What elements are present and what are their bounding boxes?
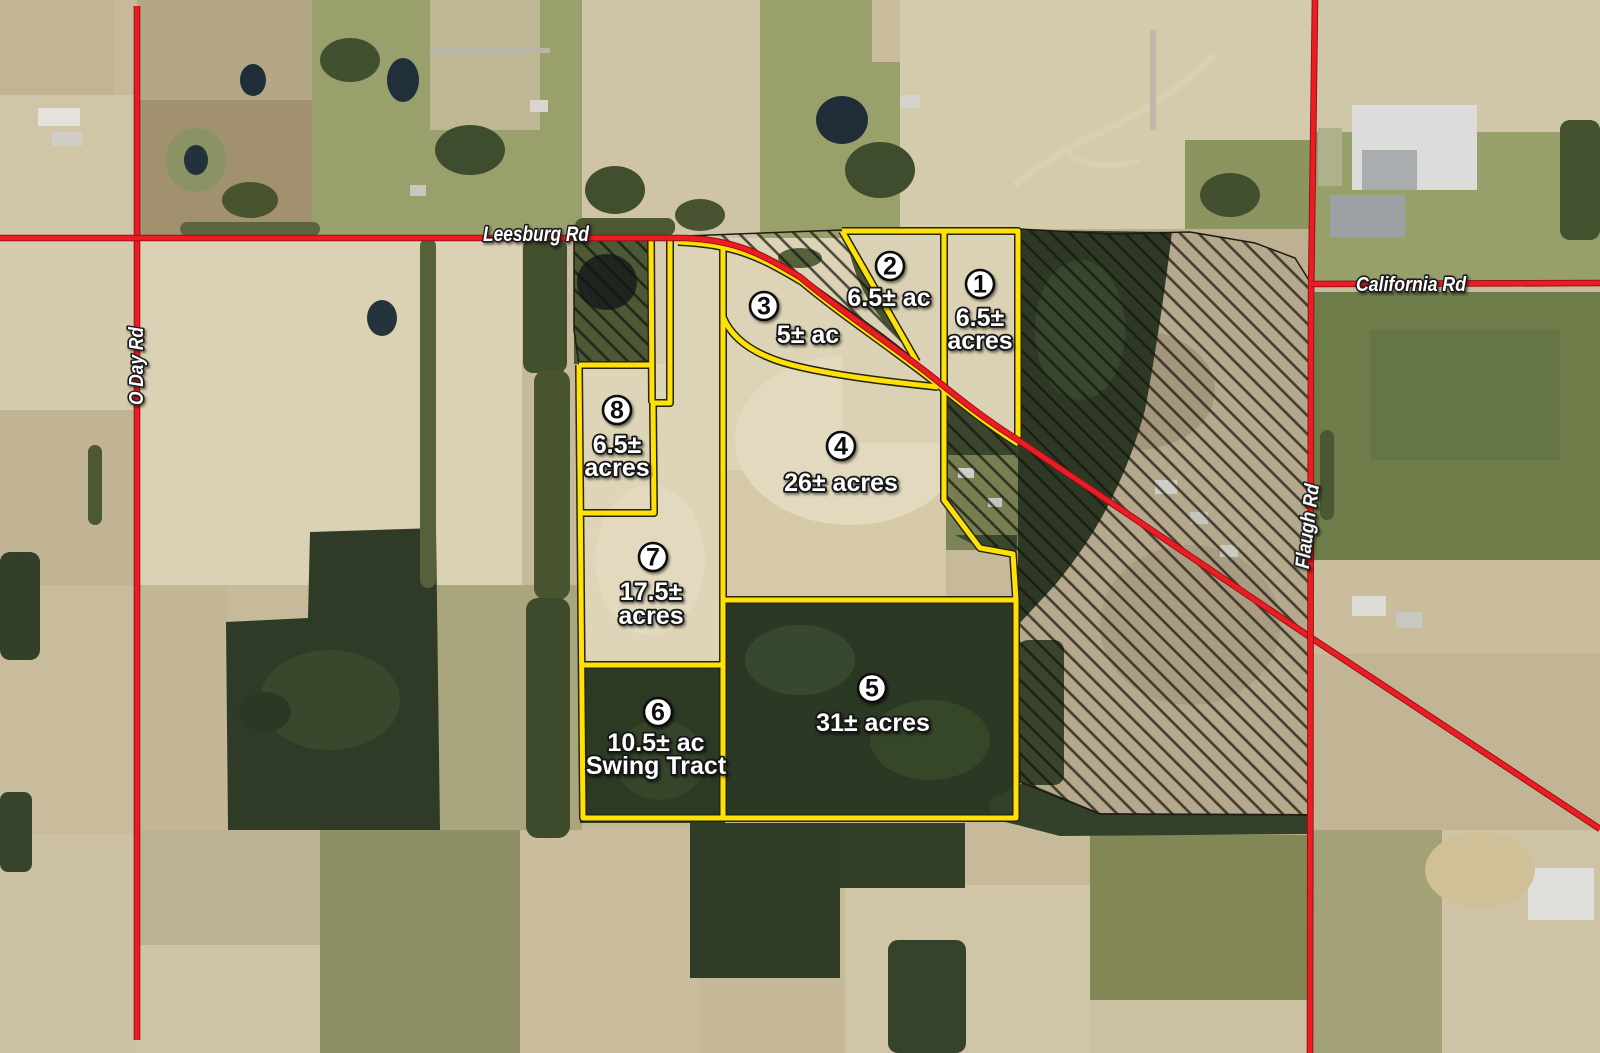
svg-text:1: 1 bbox=[973, 271, 987, 299]
svg-text:3: 3 bbox=[757, 293, 771, 321]
svg-text:5± ac: 5± ac bbox=[777, 321, 839, 349]
svg-text:6: 6 bbox=[651, 699, 665, 727]
svg-text:acres: acres bbox=[947, 327, 1012, 355]
svg-text:8: 8 bbox=[610, 397, 624, 425]
svg-text:acres: acres bbox=[618, 602, 683, 630]
svg-text:5: 5 bbox=[865, 675, 879, 703]
svg-text:O Day Rd: O Day Rd bbox=[126, 326, 148, 405]
svg-text:4: 4 bbox=[834, 433, 848, 461]
svg-text:California Rd: California Rd bbox=[1356, 274, 1467, 296]
svg-text:31± acres: 31± acres bbox=[816, 709, 930, 737]
svg-text:Swing Tract: Swing Tract bbox=[586, 752, 727, 780]
svg-text:7: 7 bbox=[646, 544, 660, 572]
svg-text:6.5± ac: 6.5± ac bbox=[847, 284, 930, 312]
svg-text:2: 2 bbox=[883, 253, 897, 281]
svg-text:acres: acres bbox=[584, 454, 649, 482]
svg-text:Leesburg Rd: Leesburg Rd bbox=[483, 222, 590, 246]
svg-text:26± acres: 26± acres bbox=[784, 469, 898, 497]
